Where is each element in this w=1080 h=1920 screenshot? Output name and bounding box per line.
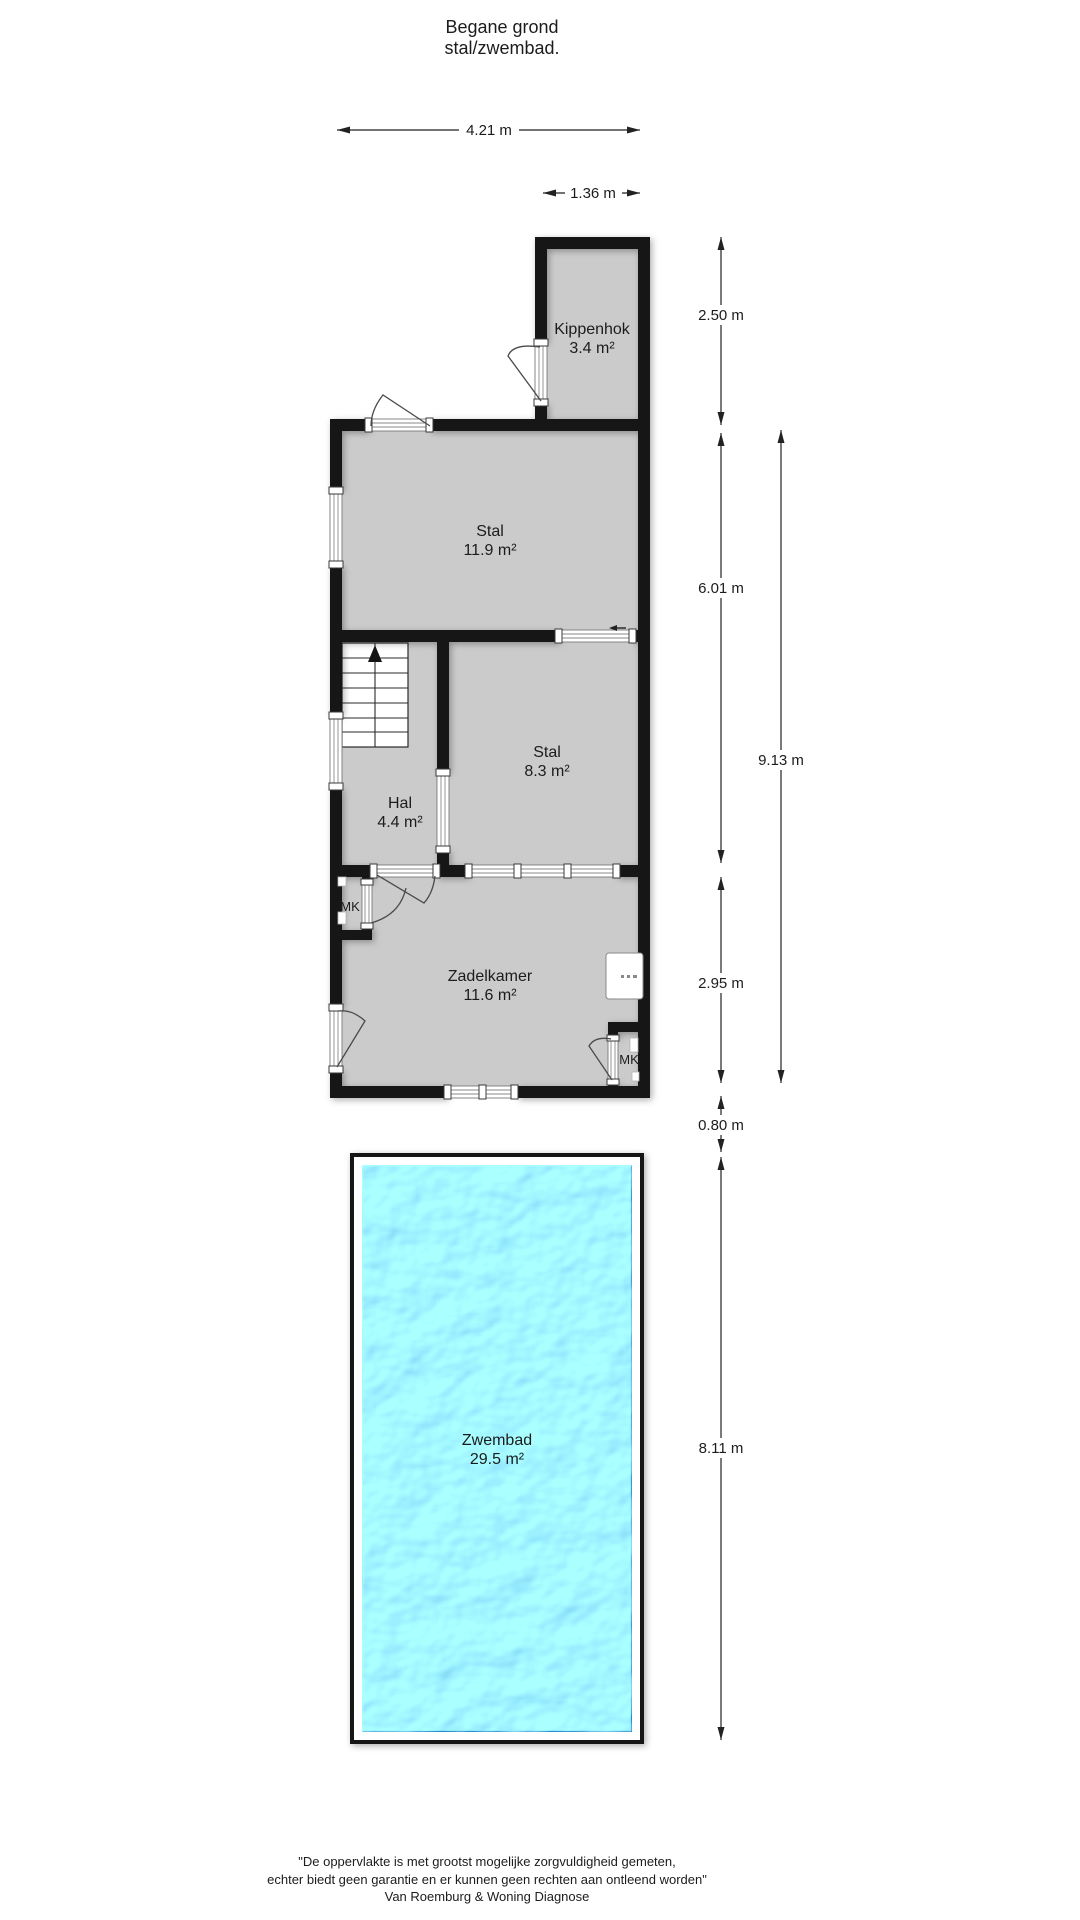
dimension-label: 6.01 m — [698, 580, 744, 597]
room-area: 11.9 m² — [463, 542, 517, 559]
dimension-label: 2.95 m — [698, 975, 744, 992]
door — [534, 339, 548, 406]
floorplan-canvas: Begane grond stal/zwembad. — [0, 0, 1080, 1920]
footer-line3: Van Roemburg & Woning Diagnose — [385, 1889, 590, 1904]
footer-line2: echter biedt geen garantie en er kunnen … — [267, 1872, 707, 1887]
window — [329, 487, 343, 568]
footer-line1: "De oppervlakte is met grootst mogelijke… — [298, 1854, 675, 1869]
room-area: 8.3 m² — [524, 763, 570, 780]
dimension-gap-to-pool: 0.80 m — [692, 1096, 750, 1152]
page-title: Begane grond stal/zwembad. — [444, 17, 559, 58]
door — [607, 1035, 619, 1085]
title-line2: stal/zwembad. — [444, 38, 559, 58]
room-area: 4.4 m² — [377, 814, 423, 831]
dimension-label: 2.50 m — [698, 307, 744, 324]
room-area: 3.4 m² — [569, 340, 615, 357]
room-label: Stal — [476, 523, 504, 540]
window — [329, 712, 343, 790]
dimension-top-width: 4.21 m — [337, 119, 640, 140]
dimension-label: 1.36 m — [570, 185, 616, 202]
boiler-unit — [606, 953, 643, 999]
window — [555, 629, 636, 643]
room-area: 11.6 m² — [463, 987, 517, 1004]
dimension-label: 0.80 m — [698, 1117, 744, 1134]
room-label: Stal — [533, 744, 561, 761]
meter-symbol — [632, 1072, 639, 1081]
dimension-label: 4.21 m — [466, 122, 512, 139]
boiler-detail — [621, 975, 624, 978]
door — [370, 864, 440, 878]
dimension-building-height: 9.13 m — [752, 430, 810, 1083]
door — [329, 1004, 343, 1073]
floorplan-page: Begane grond stal/zwembad. — [0, 0, 1080, 1920]
dimension-label: 9.13 m — [758, 752, 804, 769]
dimension-kippenhok-height: 2.50 m — [692, 237, 750, 425]
room-label: Kippenhok — [554, 321, 631, 338]
dimension-pool-height: 8.11 m — [692, 1157, 750, 1740]
footer-disclaimer: "De oppervlakte is met grootst mogelijke… — [267, 1854, 707, 1904]
boiler-detail — [633, 975, 637, 978]
room-label: Zwembad — [462, 1432, 532, 1449]
closet-label: MK — [340, 899, 360, 914]
room-area: 29.5 m² — [470, 1451, 525, 1468]
room-label: Hal — [388, 795, 412, 812]
window — [465, 864, 620, 878]
door — [436, 769, 450, 853]
title-line1: Begane grond — [445, 17, 558, 37]
window — [444, 1085, 518, 1099]
dimension-stal-section-height: 6.01 m — [692, 433, 750, 863]
dimension-kippenhok-width: 1.36 m — [543, 182, 640, 203]
meter-symbol — [630, 1038, 638, 1052]
staircase — [342, 643, 408, 747]
closet-label: MK — [619, 1052, 639, 1067]
meter-symbol — [338, 877, 346, 886]
room-label: Zadelkamer — [448, 968, 533, 985]
dimension-zadelkamer-height: 2.95 m — [692, 877, 750, 1083]
door — [361, 879, 373, 929]
boiler-detail — [627, 975, 630, 978]
door — [365, 418, 433, 432]
dimension-label: 8.11 m — [699, 1440, 744, 1457]
